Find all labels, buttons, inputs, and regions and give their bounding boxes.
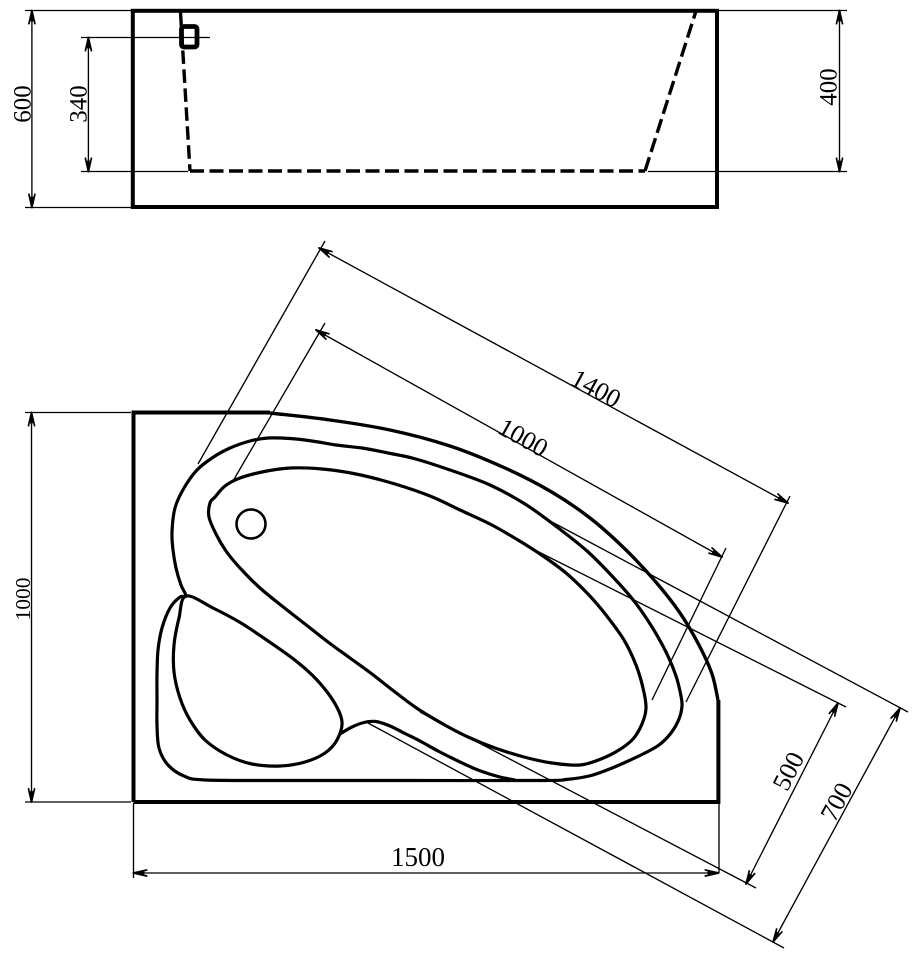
- svg-text:1000: 1000: [11, 578, 35, 621]
- svg-text:340: 340: [66, 85, 93, 123]
- svg-text:400: 400: [816, 68, 843, 106]
- svg-text:1500: 1500: [391, 842, 445, 872]
- svg-text:600: 600: [10, 85, 37, 123]
